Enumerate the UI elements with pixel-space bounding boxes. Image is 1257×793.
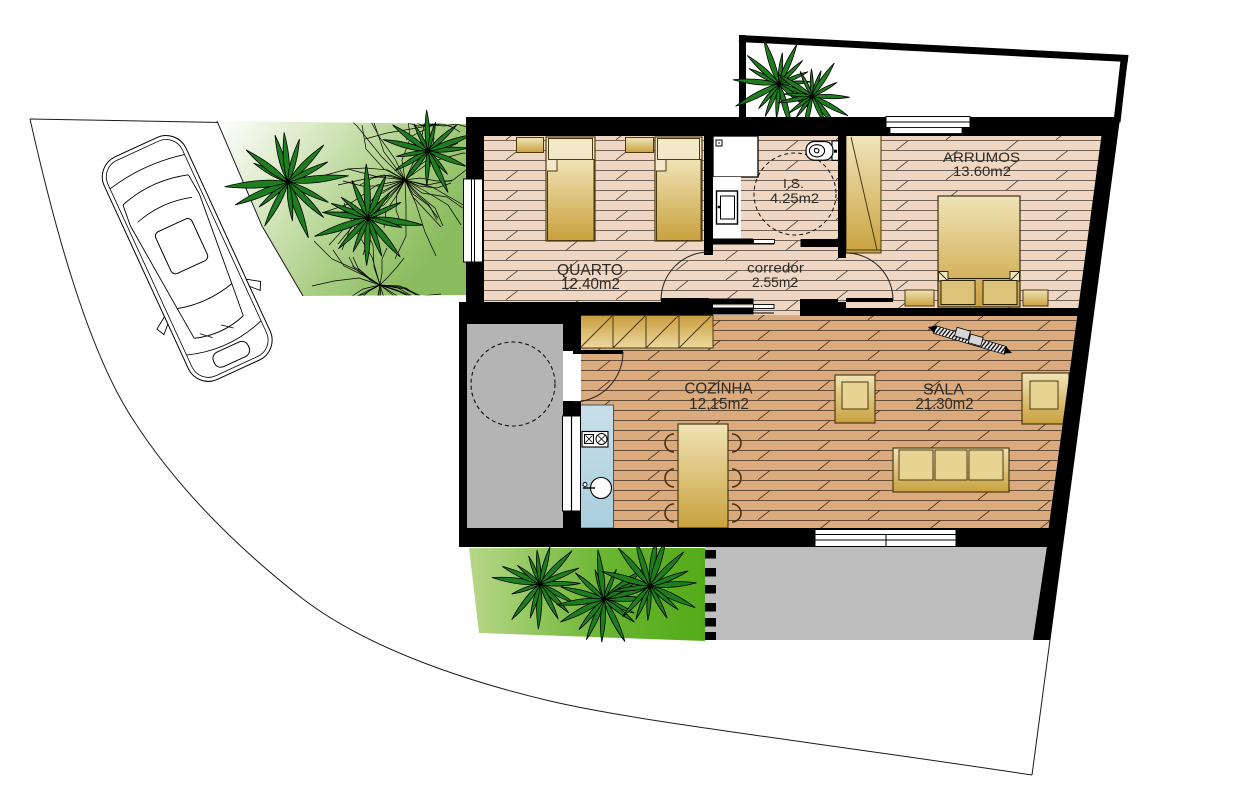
svg-text:2.55m2: 2.55m2 bbox=[752, 275, 798, 290]
svg-text:12.15m2: 12.15m2 bbox=[689, 396, 749, 413]
svg-text:ARRUMOS: ARRUMOS bbox=[943, 149, 1020, 165]
svg-text:21.30m2: 21.30m2 bbox=[916, 396, 974, 413]
svg-text:13.60m2: 13.60m2 bbox=[953, 164, 1011, 179]
svg-text:4.25m2: 4.25m2 bbox=[770, 191, 819, 206]
svg-text:I.S.: I.S. bbox=[783, 176, 804, 191]
svg-text:COZINHA: COZINHA bbox=[685, 381, 754, 398]
svg-text:12.40m2: 12.40m2 bbox=[561, 276, 620, 293]
svg-text:corredor: corredor bbox=[747, 261, 805, 276]
